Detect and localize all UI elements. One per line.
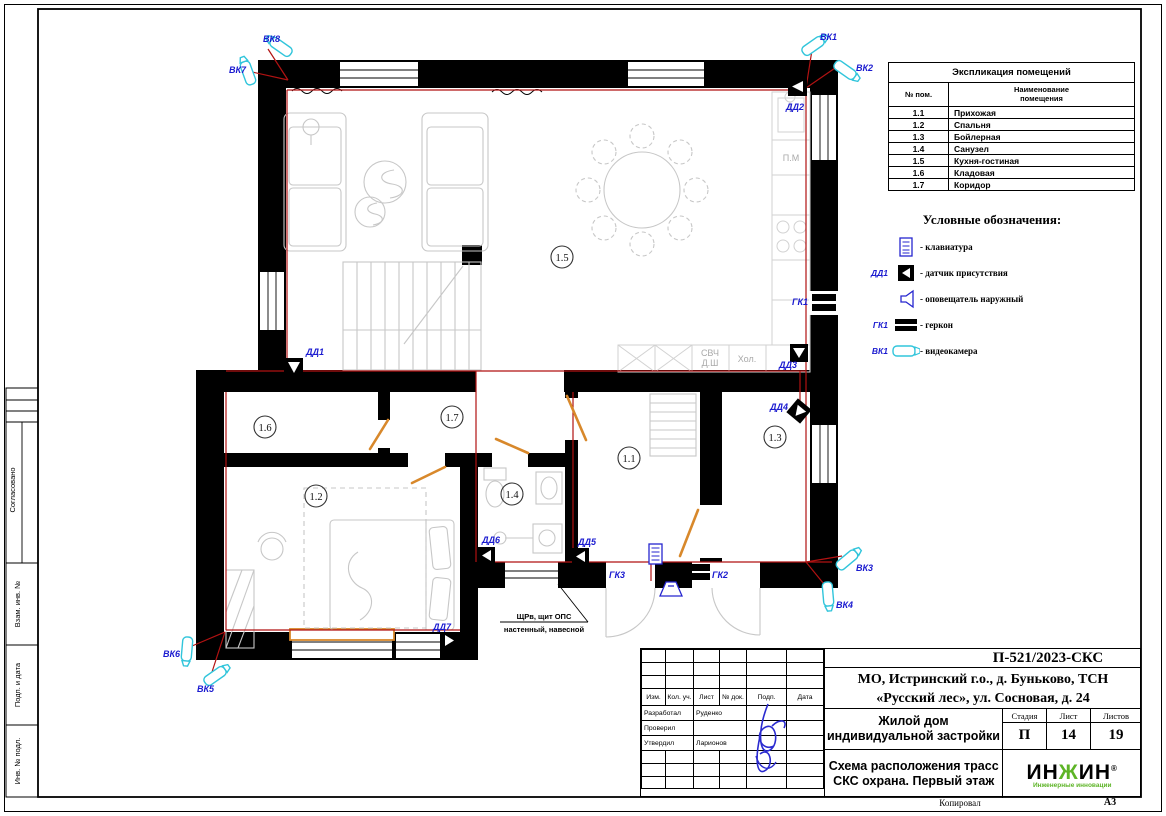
legend-item-outdoor-sounder: - оповещатель наружный xyxy=(858,289,1126,309)
label-vk7: ВК7 xyxy=(229,65,247,75)
label-gk3: ГК3 xyxy=(609,570,625,580)
object-name: Жилой дом индивидуальной застройки xyxy=(825,709,1003,749)
presence-sensor-dd6 xyxy=(478,547,495,564)
label-dd4: ДД4 xyxy=(769,402,788,412)
drawing-sheet: Согласовано Взам. инв. № Подп. и дата Ин… xyxy=(0,0,1166,816)
sheet-label: Лист xyxy=(1047,709,1091,723)
label-gk2: ГК2 xyxy=(712,570,728,580)
drawing-title: Схема расположения трасс СКС охрана. Пер… xyxy=(825,750,1003,798)
presence-sensor-dd5 xyxy=(572,548,589,565)
room-bubble-1-5: 1.5 xyxy=(551,246,573,268)
logo-subtitle: Инженерные инновации xyxy=(1033,782,1111,789)
room-bubble-1-7: 1.7 xyxy=(441,406,463,428)
sheet-value: 14 xyxy=(1047,723,1091,749)
label-vk1: ВК1 xyxy=(820,32,837,42)
hallway-closet xyxy=(650,394,696,456)
project-address: МО, Истринский г.о., д. Буньково, ТСН «Р… xyxy=(825,668,1141,709)
margin-label-agreed: Согласовано xyxy=(8,467,17,512)
porch-door-swings xyxy=(606,588,760,637)
copied-label: Копировал xyxy=(860,798,1060,808)
door-leaves xyxy=(370,396,698,556)
sheets-label: Листов xyxy=(1091,709,1141,723)
legend: Условные обозначения: - клавиатура ДД1 -… xyxy=(858,212,1126,367)
room-bubble-1-3: 1.3 xyxy=(764,426,786,448)
explication-row: 1.5Кухня-гостиная xyxy=(889,155,1135,167)
keypad-icon xyxy=(649,544,662,564)
legend-item-presence-sensor: ДД1 - датчик присутствия xyxy=(858,263,1126,283)
label-vk2: ВК2 xyxy=(856,63,873,73)
stairs xyxy=(343,262,481,370)
legend-title: Условные обозначения: xyxy=(858,212,1126,228)
label-dd5: ДД5 xyxy=(577,537,597,547)
explication-row: 1.2Спальня xyxy=(889,119,1135,131)
outdoor-sounder-icon xyxy=(892,289,920,309)
svg-text:1.2: 1.2 xyxy=(309,492,322,503)
reed-switch-gk1 xyxy=(809,291,839,315)
presence-sensors xyxy=(284,77,812,649)
svg-text:1.7: 1.7 xyxy=(445,413,458,424)
presence-sensor-dd2 xyxy=(788,77,807,96)
svg-text:1.1: 1.1 xyxy=(622,454,635,465)
explication-title: Экспликация помещений xyxy=(889,63,1135,83)
sheets-value: 19 xyxy=(1091,723,1141,749)
margin-label-podp: Подп. и дата xyxy=(13,662,22,707)
label-vk3: ВК3 xyxy=(856,563,873,573)
label-dd6: ДД6 xyxy=(481,535,501,545)
label-vk8: ВК8 xyxy=(263,34,280,44)
legend-item-reed-switch: ГК1 - геркон xyxy=(858,315,1126,335)
explication-row: 1.6Кладовая xyxy=(889,167,1135,179)
label-dishwasher: П.М xyxy=(783,153,799,163)
title-block: Изм. Кол. уч. Лист № док. Подп. Дата Раз… xyxy=(640,648,1141,797)
presence-sensor-icon xyxy=(892,264,920,282)
bedroom-furniture xyxy=(226,488,454,648)
room-bubble-1-6: 1.6 xyxy=(254,416,276,438)
reed-switch-icon xyxy=(892,318,920,332)
label-vk4: ВК4 xyxy=(836,600,853,610)
callout-line2: настенный, навесной xyxy=(504,625,585,634)
left-margin-stamps: Согласовано Взам. инв. № Подп. и дата Ин… xyxy=(6,388,38,797)
callout-line1: ЩРв, щит ОПС xyxy=(517,612,572,621)
address-line1: МО, Истринский г.о., д. Буньково, ТСН xyxy=(825,670,1141,689)
kitchen-counter xyxy=(618,92,810,372)
svg-text:1.4: 1.4 xyxy=(505,490,519,501)
stage-label: Стадия xyxy=(1003,709,1047,723)
room-bubble-1-1: 1.1 xyxy=(618,447,640,469)
explication-table: Экспликация помещений № пом. Наименовани… xyxy=(888,62,1135,191)
presence-sensor-dd1 xyxy=(284,358,303,377)
label-dd7: ДД7 xyxy=(432,622,452,632)
explication-row: 1.3Бойлерная xyxy=(889,131,1135,143)
label-oven: Д.Ш xyxy=(702,358,719,368)
address-line2: «Русский лес», ул. Сосновая, д. 24 xyxy=(825,689,1141,708)
explication-col-num: № пом. xyxy=(889,83,949,107)
label-fridge: Хол. xyxy=(738,354,756,364)
legend-item-camera: ВК1 - видеокамера xyxy=(858,341,1126,361)
svg-text:1.5: 1.5 xyxy=(555,253,568,264)
signatures xyxy=(738,696,798,781)
stage-sheet-grid: Стадия Лист Листов П 14 19 xyxy=(1003,709,1141,749)
reed-switch-gk2 xyxy=(690,564,710,580)
svg-text:1.6: 1.6 xyxy=(258,423,271,434)
label-vk6: ВК6 xyxy=(163,649,181,659)
label-microwave: СВЧ xyxy=(701,348,719,358)
document-code: П-521/2023-СКС xyxy=(825,649,1141,668)
explication-row: 1.4Санузел xyxy=(889,143,1135,155)
panel-callout: ЩРв, щит ОПС настенный, навесной xyxy=(500,584,588,634)
explication-row: 1.7Коридор xyxy=(889,179,1135,191)
presence-sensor-dd7 xyxy=(441,632,458,649)
margin-label-vzam: Взам. инв. № xyxy=(13,581,22,627)
camera-icon-vk4 xyxy=(822,582,834,612)
keypad-icon xyxy=(892,237,920,257)
label-vk5: ВК5 xyxy=(197,684,215,694)
dining-set xyxy=(576,124,708,256)
legend-item-keypad: - клавиатура xyxy=(858,237,1126,257)
company-logo: ИНЖИН® Инженерные инновации xyxy=(1003,750,1141,798)
margin-label-inv: Инв. № подл. xyxy=(13,738,22,785)
format-label: А3 xyxy=(1090,797,1130,808)
window-frame-orange xyxy=(290,629,394,640)
label-gk1: ГК1 xyxy=(792,297,808,307)
label-dd1: ДД1 xyxy=(305,347,324,357)
camera-icon-vk6 xyxy=(181,637,193,667)
svg-text:1.3: 1.3 xyxy=(768,433,781,444)
explication-col-name: Наименование помещения xyxy=(949,83,1135,107)
presence-sensor-dd4 xyxy=(786,398,811,423)
label-dd2: ДД2 xyxy=(785,102,804,112)
explication-row: 1.1Прихожая xyxy=(889,107,1135,119)
camera-icon xyxy=(892,344,920,358)
stage-value: П xyxy=(1003,723,1047,749)
label-dd3: ДД3 xyxy=(778,360,797,370)
